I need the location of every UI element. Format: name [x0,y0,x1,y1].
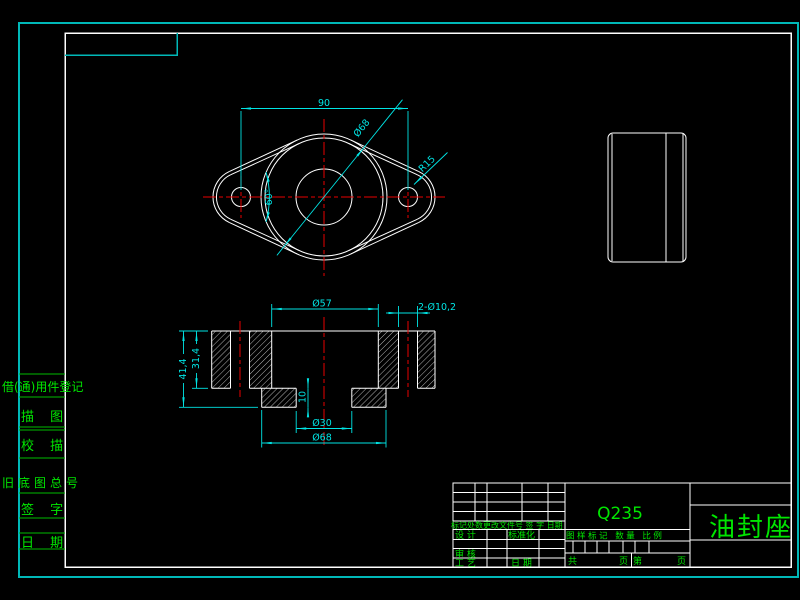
strip-label-old-master-no: 旧底图总号 [2,475,82,490]
dim-angle: 60° [264,172,275,222]
svg-text:R15: R15 [417,154,438,175]
svg-text:Ø57: Ø57 [312,299,332,310]
section-outline [212,331,435,407]
svg-text:10: 10 [298,391,309,403]
strip-grid [19,374,65,549]
svg-text:31,4: 31,4 [191,348,202,369]
dim-bolt-holes: 2-Ø10,2 [386,302,456,327]
date-label: 日 期 [511,558,532,569]
sheet-page-label-1: 页 [619,556,628,567]
left-registration-strip: 借(通)用件登记 描 图 校 描 旧底图总号 签 字 日 期 [2,374,83,551]
top-view: 90 Ø68 R15 60° [203,98,448,276]
sheet-no-label: 第 [633,555,642,567]
sheet-total-label: 共 [568,556,577,567]
svg-text:60°: 60° [264,189,275,206]
dim-lobe-radius: R15 [414,153,448,185]
svg-text:2-Ø10,2: 2-Ø10,2 [418,302,456,313]
change-record-header: 标记处数更改文件号 签 字 日期 [451,520,563,530]
svg-text:90: 90 [318,98,330,109]
svg-text:41,4: 41,4 [178,358,189,379]
part-name: 油封座 [709,513,793,543]
svg-text:Ø30: Ø30 [312,418,332,429]
drawing-mark-header: 图样标记 数量 比例 [566,531,664,542]
corner-reference-box [65,33,177,55]
svg-text:Ø68: Ø68 [312,433,332,444]
design-label: 设 计 [455,529,476,541]
title-block: 标记处数更改文件号 签 字 日期 设 计 标准化 审 核 工 艺 日 期 图样标… [451,483,793,569]
dim-bore-diameter: Ø57 [272,299,379,328]
dim-recess-depth: 10 [298,379,309,416]
side-view [608,133,686,262]
strip-label-tracing: 描 图 [21,410,69,425]
section-view: Ø57 2-Ø10,2 41,4 31,4 [178,299,456,449]
cad-drawing-sheet: 借(通)用件登记 描 图 校 描 旧底图总号 签 字 日 期 [0,0,800,600]
process-label: 工 艺 [455,558,476,569]
strip-label-check-tracing: 校 描 [21,438,69,454]
material-value: Q235 [597,504,643,524]
svg-text:Ø68: Ø68 [352,117,373,139]
strip-label-date: 日 期 [21,536,69,551]
section-hatch [212,331,435,407]
inner-border [65,33,791,567]
dim-flange-height: 31,4 [191,331,208,388]
strip-label-borrowed-parts: 借(通)用件登记 [2,379,83,394]
strip-label-signature: 签 字 [21,502,69,518]
sheet-page-label-2: 页 [677,556,686,567]
standardize-label: 标准化 [508,529,535,541]
outer-border [19,23,798,577]
